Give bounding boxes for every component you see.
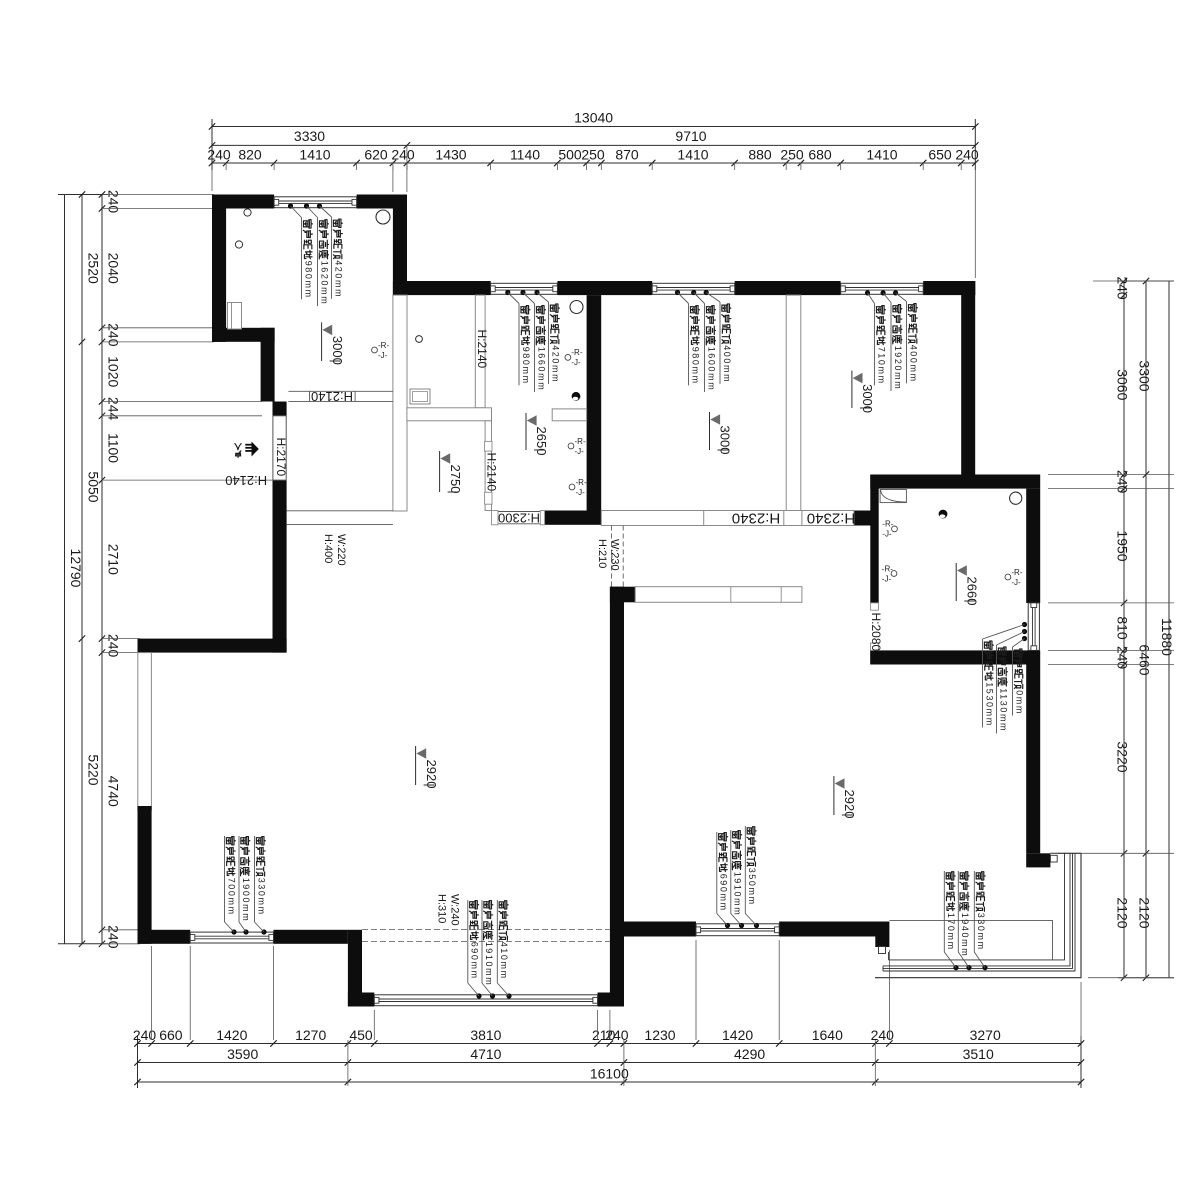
svg-text:410mm: 410mm: [499, 942, 509, 980]
svg-text:690mm: 690mm: [719, 874, 729, 912]
svg-text:5220: 5220: [86, 754, 102, 785]
svg-text:-R-: -R-: [378, 341, 389, 350]
svg-text:980mm: 980mm: [521, 347, 531, 385]
svg-text:12790: 12790: [68, 549, 84, 588]
svg-text:1410: 1410: [299, 147, 330, 163]
svg-text:240: 240: [106, 190, 122, 214]
svg-text:1020: 1020: [106, 356, 122, 387]
svg-text:-J-: -J-: [378, 351, 388, 360]
svg-text:330mm: 330mm: [976, 913, 986, 951]
svg-text:250: 250: [780, 147, 804, 163]
svg-text:-J-: -J-: [882, 574, 892, 583]
svg-text:2710: 2710: [106, 544, 122, 575]
svg-text:1230: 1230: [644, 1027, 675, 1043]
svg-text:4290: 4290: [734, 1046, 765, 1062]
svg-text:-R-: -R-: [882, 564, 893, 573]
svg-text:2040: 2040: [106, 253, 122, 284]
svg-text:244: 244: [106, 397, 122, 421]
svg-text:13040: 13040: [574, 109, 613, 125]
svg-text:H:310: H:310: [436, 894, 448, 923]
svg-text:240: 240: [133, 1027, 157, 1043]
svg-text:H:2300: H:2300: [498, 511, 540, 526]
svg-text:660: 660: [159, 1027, 183, 1043]
svg-text:-R-: -R-: [1011, 568, 1022, 577]
svg-text:0mm: 0mm: [1015, 690, 1025, 715]
svg-text:W:240: W:240: [449, 894, 461, 926]
svg-text:170mm: 170mm: [946, 913, 956, 951]
svg-text:W:230: W:230: [609, 539, 621, 571]
svg-text:1140: 1140: [510, 147, 540, 163]
svg-text:2920: 2920: [424, 760, 439, 789]
svg-text:350mm: 350mm: [747, 868, 757, 906]
svg-text:3060: 3060: [1115, 369, 1131, 400]
svg-text:700mm: 700mm: [226, 878, 236, 916]
svg-text:1920mm: 1920mm: [893, 346, 903, 391]
svg-text:3510: 3510: [963, 1046, 994, 1062]
svg-text:16100: 16100: [590, 1066, 629, 1082]
svg-text:690mm: 690mm: [470, 942, 480, 980]
svg-text:4740: 4740: [106, 776, 122, 807]
svg-text:1640: 1640: [812, 1027, 843, 1043]
svg-text:1940mm: 1940mm: [960, 913, 970, 958]
svg-text:1130mm: 1130mm: [999, 688, 1009, 732]
svg-text:H:2140: H:2140: [485, 453, 499, 492]
svg-text:240: 240: [106, 925, 122, 949]
svg-text:420mm: 420mm: [334, 260, 344, 298]
svg-text:H:2080: H:2080: [869, 613, 883, 652]
svg-text:1420: 1420: [722, 1027, 753, 1043]
svg-text:5050: 5050: [86, 471, 102, 502]
svg-text:3810: 3810: [470, 1027, 501, 1043]
svg-text:3300: 3300: [1137, 360, 1153, 391]
svg-text:3220: 3220: [1115, 741, 1131, 772]
svg-text:400mm: 400mm: [909, 345, 919, 383]
svg-text:1910mm: 1910mm: [733, 872, 743, 917]
svg-text:3330: 3330: [294, 128, 325, 144]
svg-text:880: 880: [748, 147, 772, 163]
svg-text:650: 650: [928, 147, 952, 163]
svg-text:-J-: -J-: [1011, 578, 1021, 587]
svg-text:-R-: -R-: [571, 348, 582, 357]
svg-text:980mm: 980mm: [304, 261, 314, 299]
svg-text:H:2340: H:2340: [807, 510, 855, 527]
svg-text:-R-: -R-: [882, 520, 893, 529]
svg-text:-J-: -J-: [882, 530, 892, 539]
svg-text:H:210: H:210: [596, 539, 608, 568]
svg-text:2650: 2650: [534, 427, 549, 456]
svg-text:9710: 9710: [675, 128, 706, 144]
svg-text:2750: 2750: [448, 465, 463, 494]
svg-text:1600mm: 1600mm: [707, 347, 717, 392]
svg-text:240: 240: [1115, 276, 1131, 300]
svg-text:2120: 2120: [1137, 897, 1153, 928]
svg-text:240: 240: [106, 634, 122, 658]
svg-text:240: 240: [391, 147, 415, 163]
svg-text:2520: 2520: [86, 253, 102, 284]
svg-text:6460: 6460: [1137, 644, 1153, 675]
svg-text:-J-: -J-: [576, 488, 586, 497]
svg-text:240: 240: [605, 1027, 629, 1043]
svg-text:240: 240: [955, 147, 979, 163]
svg-text:H:2140: H:2140: [311, 389, 353, 404]
svg-text:1620mm: 1620mm: [320, 261, 330, 306]
svg-text:1410: 1410: [866, 147, 897, 163]
svg-text:870: 870: [615, 147, 639, 163]
svg-text:500: 500: [558, 147, 582, 163]
svg-text:-R-: -R-: [575, 437, 586, 446]
svg-text:H:400: H:400: [322, 534, 334, 563]
svg-text:-J-: -J-: [575, 447, 585, 456]
svg-text:620: 620: [364, 147, 388, 163]
svg-text:3000: 3000: [860, 384, 875, 413]
svg-text:4710: 4710: [470, 1046, 501, 1062]
svg-text:H:2140: H:2140: [225, 473, 267, 488]
svg-text:240: 240: [1115, 470, 1131, 494]
svg-text:820: 820: [238, 147, 262, 163]
svg-text:1900mm: 1900mm: [241, 878, 251, 923]
svg-text:1660mm: 1660mm: [537, 347, 547, 392]
svg-text:240: 240: [1115, 646, 1131, 670]
svg-text:420mm: 420mm: [551, 345, 561, 383]
svg-text:1410: 1410: [677, 147, 708, 163]
svg-text:H:2140: H:2140: [475, 330, 489, 369]
svg-text:-R-: -R-: [576, 478, 587, 487]
svg-text:330mm: 330mm: [256, 878, 266, 916]
svg-text:-J-: -J-: [571, 358, 581, 367]
svg-text:450: 450: [349, 1027, 373, 1043]
svg-text:250: 250: [581, 147, 605, 163]
svg-text:710mm: 710mm: [877, 347, 887, 385]
svg-text:W:220: W:220: [335, 534, 347, 566]
svg-text:1100: 1100: [106, 433, 122, 463]
svg-text:1270: 1270: [295, 1027, 326, 1043]
svg-text:980mm: 980mm: [691, 347, 701, 385]
svg-text:1430: 1430: [435, 147, 466, 163]
svg-text:3590: 3590: [227, 1046, 258, 1062]
svg-text:1950: 1950: [1115, 530, 1131, 561]
svg-text:240: 240: [871, 1027, 895, 1043]
svg-text:400mm: 400mm: [722, 345, 732, 383]
svg-text:240: 240: [207, 147, 231, 163]
svg-text:680: 680: [808, 147, 832, 163]
svg-text:1530mm: 1530mm: [985, 682, 995, 727]
svg-text:1910mm: 1910mm: [484, 942, 494, 987]
svg-text:3000: 3000: [330, 336, 345, 365]
svg-text:240: 240: [106, 323, 122, 347]
svg-text:2120: 2120: [1115, 897, 1131, 928]
svg-text:2920: 2920: [842, 790, 857, 819]
svg-text:H:2340: H:2340: [732, 510, 780, 527]
svg-text:3270: 3270: [970, 1027, 1001, 1043]
svg-text:H:2170: H:2170: [274, 438, 288, 477]
svg-text:1420: 1420: [216, 1027, 247, 1043]
svg-text:810: 810: [1115, 616, 1131, 640]
